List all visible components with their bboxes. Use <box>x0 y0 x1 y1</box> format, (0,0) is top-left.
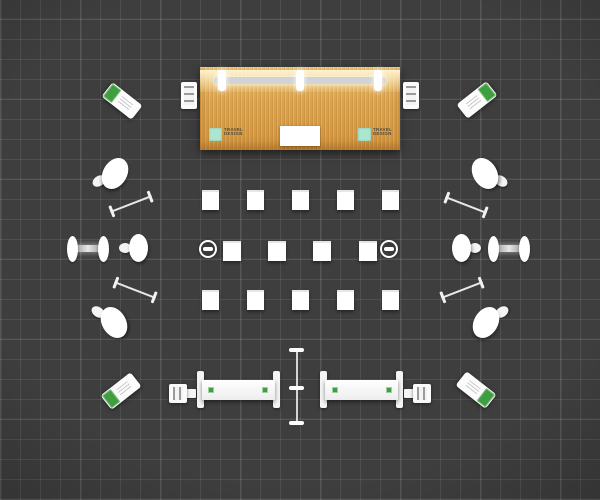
barbell-disc <box>67 236 78 262</box>
barbell-disc <box>98 236 109 262</box>
logo-text: TRAVEL DESIGN <box>373 128 392 137</box>
table-top <box>129 234 148 262</box>
rack-tab <box>186 389 196 398</box>
display-pedestal <box>247 290 264 310</box>
counter-logo <box>208 387 214 393</box>
display-pedestal <box>202 190 219 210</box>
counter-logo <box>332 387 338 393</box>
booth-logo-right: TRAVEL DESIGN <box>358 128 400 141</box>
logo-text: TRAVEL DESIGN <box>224 128 243 137</box>
side-rack-right <box>403 82 419 109</box>
truss-clamp <box>218 70 226 91</box>
counter-body <box>202 380 275 400</box>
literature-rack-bottom-left <box>169 384 187 403</box>
logo-mark-icon <box>358 128 371 141</box>
reception-counter-right <box>320 371 403 408</box>
counter-body <box>325 380 398 400</box>
counter-logo <box>262 387 268 393</box>
display-pedestal <box>292 190 309 210</box>
booth-logo-left: TRAVEL DESIGN <box>209 128 251 141</box>
barbell-disc <box>488 236 499 262</box>
barbell-bench-left <box>67 236 109 262</box>
display-pedestal <box>223 241 241 261</box>
truss-clamp <box>374 70 382 91</box>
backwall-monitor <box>280 126 320 146</box>
display-pedestal <box>337 290 354 310</box>
display-pedestal <box>382 290 399 310</box>
pole-tick <box>289 348 304 352</box>
barbell-bench-right <box>488 236 530 262</box>
booth-render: TRAVEL DESIGN TRAVEL DESIGN <box>0 0 600 500</box>
barbell-disc <box>519 236 530 262</box>
display-pedestal <box>359 241 377 261</box>
spotlight-bulb <box>203 247 213 251</box>
spotlight-icon <box>199 240 217 258</box>
display-pedestal <box>337 190 354 210</box>
display-pedestal <box>313 241 331 261</box>
display-pedestal <box>292 290 309 310</box>
spotlight-icon <box>380 240 398 258</box>
pole-tick <box>289 386 304 390</box>
reception-counter-left <box>197 371 280 408</box>
side-rack-left <box>181 82 197 109</box>
display-pedestal <box>202 290 219 310</box>
spotlight-bulb <box>384 247 394 251</box>
pole-tick <box>289 421 304 425</box>
logo-mark-icon <box>209 128 222 141</box>
display-pedestal <box>247 190 264 210</box>
truss-clamp <box>296 70 304 91</box>
logo-line2: DESIGN <box>224 132 243 136</box>
logo-line2: DESIGN <box>373 132 392 136</box>
backwall-panel: TRAVEL DESIGN TRAVEL DESIGN <box>200 67 400 150</box>
counter-logo <box>386 387 392 393</box>
display-pedestal <box>382 190 399 210</box>
table-top <box>452 234 471 262</box>
literature-rack-bottom-right <box>413 384 431 403</box>
display-pedestal <box>268 241 286 261</box>
